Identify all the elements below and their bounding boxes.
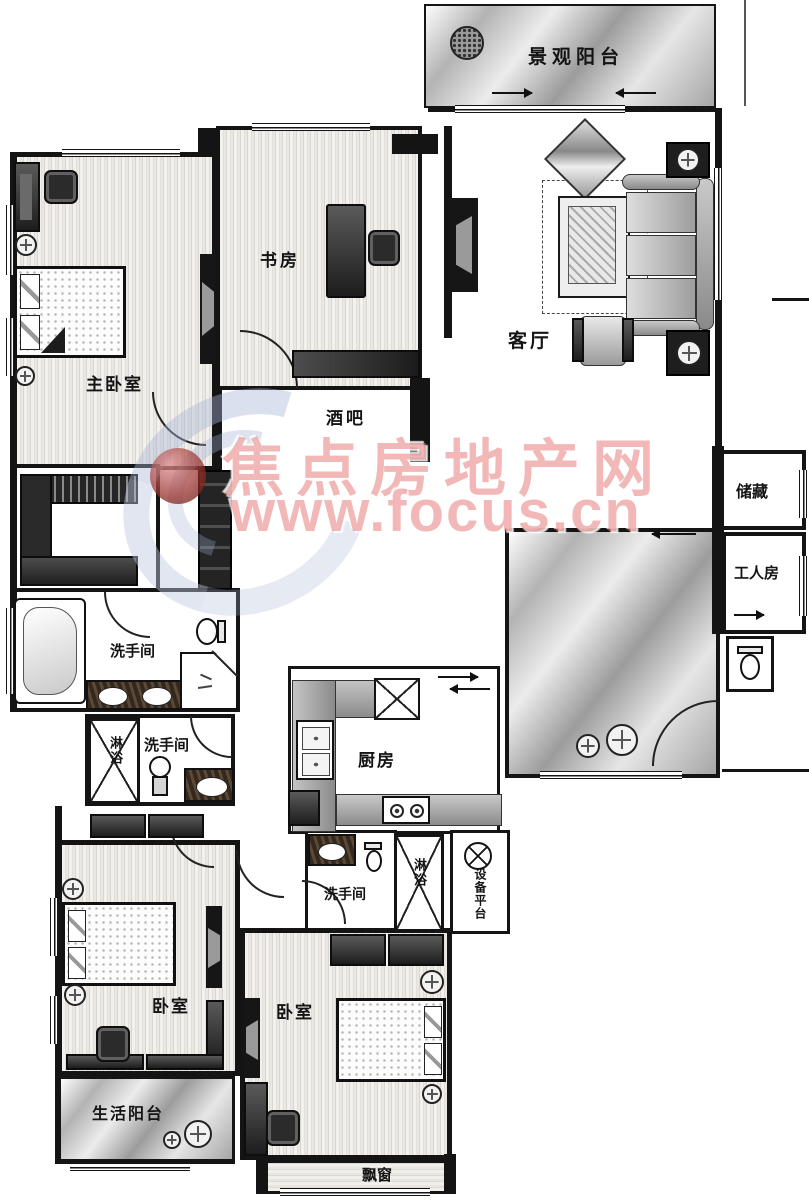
- sofa-cushion: [626, 278, 696, 319]
- wall-study-living-chunk: [392, 134, 438, 154]
- window-bath-left: [6, 608, 14, 694]
- room-label-living: 客厅: [508, 326, 552, 353]
- wardrobe: [90, 814, 146, 838]
- bedroom2-cabinet: [244, 1082, 268, 1156]
- bathtub: [14, 598, 86, 704]
- balcony-door-arrow-right: [492, 92, 532, 94]
- bedroom-chair: [44, 170, 78, 204]
- kitchen-appliance: [288, 790, 320, 826]
- tv-icon: [246, 1020, 258, 1060]
- stove: [382, 796, 430, 824]
- coffee-table-glass: [568, 206, 616, 284]
- floor-plan: 景观阳台 客厅 书房 主卧室 酒吧 储藏 工人房 洗手间 洗手间 洗手间 淋浴 …: [0, 0, 809, 1200]
- bed-2: [336, 998, 446, 1082]
- study-cabinet: [292, 350, 420, 378]
- toilet-tank: [217, 620, 226, 643]
- tv-icon: [202, 282, 214, 336]
- room-label-shower-1: 淋浴: [106, 736, 125, 766]
- sliding-door-balcony: [455, 105, 625, 113]
- nightstand-icon: [420, 970, 444, 994]
- room-label-bedroom-1: 卧室: [152, 992, 190, 1017]
- wardrobe: [388, 934, 444, 966]
- nightstand-icon: [422, 1084, 442, 1104]
- stool-icon: [15, 234, 37, 256]
- fan-icon: [576, 734, 600, 758]
- toilet-bowl: [366, 850, 382, 872]
- wardrobe: [148, 814, 204, 838]
- sink-icon: [196, 777, 228, 797]
- bedroom1-low-cabinet: [146, 1054, 224, 1070]
- kitchen-door-arrow-right: [438, 676, 478, 678]
- dresser-mirror: [20, 174, 32, 220]
- window-worker-right: [799, 556, 807, 616]
- window-bay-bottom: [280, 1188, 430, 1196]
- wall-bay-right: [444, 1154, 456, 1194]
- room-label-bay-window: 飘窗: [362, 1164, 392, 1185]
- sink-icon: [98, 687, 128, 706]
- tv-cabinet-bedroom1: [206, 906, 222, 988]
- room-label-shower-2: 淋浴: [410, 858, 429, 888]
- tv-cabinet-living: [448, 198, 478, 292]
- window-bedroom1-left-1: [50, 898, 58, 956]
- bedroom2-chair: [266, 1110, 300, 1146]
- armchair-arm-left: [572, 318, 584, 362]
- line-right-upper: [772, 298, 809, 301]
- blanket-fold: [41, 327, 65, 353]
- master-toilet: [196, 618, 228, 645]
- desk: [326, 204, 366, 298]
- bath2-sink-counter: [184, 768, 234, 802]
- sofa: [622, 174, 716, 336]
- kitchen-door-arrow-left: [450, 688, 490, 690]
- worker-toilet: [736, 646, 764, 682]
- bed-1: [62, 902, 176, 986]
- sofa-back: [696, 178, 714, 330]
- room-label-life-balcony: 生活阳台: [92, 1100, 164, 1124]
- line-top-right: [744, 0, 746, 106]
- desk-chair: [368, 230, 400, 266]
- sofa-cushion: [626, 235, 696, 276]
- room-label-bedroom-2: 卧室: [276, 998, 314, 1023]
- sofa-cushion: [626, 192, 696, 233]
- vanity-counter: [86, 680, 182, 710]
- room-label-bathroom-3: 洗手间: [324, 884, 366, 904]
- window-study-top: [252, 123, 370, 131]
- tv-cabinet-master: [200, 254, 216, 364]
- burner-icon: [390, 804, 404, 818]
- bedroom1-chair: [96, 1026, 130, 1062]
- room-label-master-bathroom: 洗手间: [110, 640, 155, 661]
- gray-room-arrow: [652, 533, 696, 535]
- wall-left-step: [55, 806, 62, 842]
- nightstand-icon: [62, 878, 84, 900]
- window-master-left-1: [6, 205, 14, 275]
- room-label-bathroom-2: 洗手间: [144, 734, 189, 755]
- sink-basin: [302, 753, 330, 776]
- pillow: [424, 1006, 442, 1038]
- planter-icon: [184, 1120, 212, 1148]
- pillow: [68, 947, 86, 979]
- fan-icon: [606, 724, 638, 756]
- lamp-icon: [676, 340, 702, 366]
- sink-icon: [318, 843, 346, 861]
- wall-storage-left: [712, 446, 724, 634]
- slide-tick-1: [715, 482, 724, 485]
- armchair-arm-right: [622, 318, 634, 362]
- room-label-worker: 工人房: [734, 562, 779, 583]
- window-bedroom1-left-2: [50, 996, 58, 1044]
- equipment-fan-icon: [464, 842, 492, 870]
- pillow: [424, 1043, 442, 1075]
- dresser: [14, 162, 40, 232]
- nightstand-icon: [64, 984, 86, 1006]
- planter-icon: [450, 26, 484, 60]
- wall-bar-stub: [410, 378, 430, 462]
- bar-counter: [198, 470, 232, 590]
- bathtub-inner: [23, 607, 77, 695]
- room-label-storage: 储藏: [736, 478, 768, 502]
- sink-basin: [302, 727, 330, 750]
- window-gray-bottom: [540, 771, 682, 779]
- bath3-sink-counter: [308, 834, 356, 866]
- room-label-bar: 酒吧: [326, 404, 366, 429]
- pillow: [68, 910, 86, 942]
- window-living-right: [714, 168, 722, 300]
- planter-icon: [163, 1131, 181, 1149]
- fridge: [374, 678, 420, 720]
- stool-icon: [15, 366, 35, 386]
- closet-bottom: [20, 556, 138, 586]
- pillow: [20, 274, 40, 309]
- slide-tick-2: [715, 488, 724, 491]
- balcony-door-arrow-left: [616, 92, 656, 94]
- window-master-top: [62, 149, 180, 157]
- wall-top-step: [198, 128, 220, 156]
- worker-room-arrow: [734, 614, 764, 616]
- toilet-tank: [737, 646, 763, 654]
- room-label-equipment-platform: 设备平台: [472, 868, 489, 920]
- tv-cabinet-bedroom2: [244, 998, 260, 1078]
- room-label-kitchen: 厨房: [358, 746, 396, 771]
- wall-bay-left: [256, 1154, 268, 1194]
- armchair-seat: [580, 316, 626, 366]
- tv-icon: [456, 216, 472, 274]
- kitchen-sink: [296, 720, 334, 780]
- tv-icon: [208, 928, 220, 968]
- toilet-tank: [364, 842, 382, 850]
- room-label-landscape-balcony: 景观阳台: [528, 42, 624, 69]
- coffee-table: [558, 196, 630, 298]
- side-table-lamp-top: [666, 142, 710, 178]
- lamp-icon: [676, 148, 700, 172]
- window-master-left-2: [6, 318, 14, 376]
- window-life-balcony: [70, 1163, 190, 1171]
- side-table-lamp-bottom: [666, 330, 710, 376]
- burner-icon: [410, 804, 424, 818]
- window-storage-right: [799, 470, 807, 518]
- bath2-toilet: [148, 756, 172, 798]
- wardrobe: [330, 934, 386, 966]
- toilet-bowl: [740, 654, 760, 680]
- pillow: [20, 315, 40, 350]
- sink-icon: [142, 687, 172, 706]
- master-bed: [14, 266, 126, 358]
- line-right-lower: [722, 769, 809, 772]
- room-label-study: 书房: [260, 246, 300, 271]
- room-label-master-bedroom: 主卧室: [86, 370, 143, 395]
- armchair: [572, 314, 634, 368]
- toilet-bowl: [196, 618, 218, 645]
- toilet-bowl: [149, 756, 171, 778]
- bath3-toilet: [362, 842, 386, 874]
- door-bedroom-2: [236, 850, 284, 898]
- toilet-base: [152, 776, 168, 796]
